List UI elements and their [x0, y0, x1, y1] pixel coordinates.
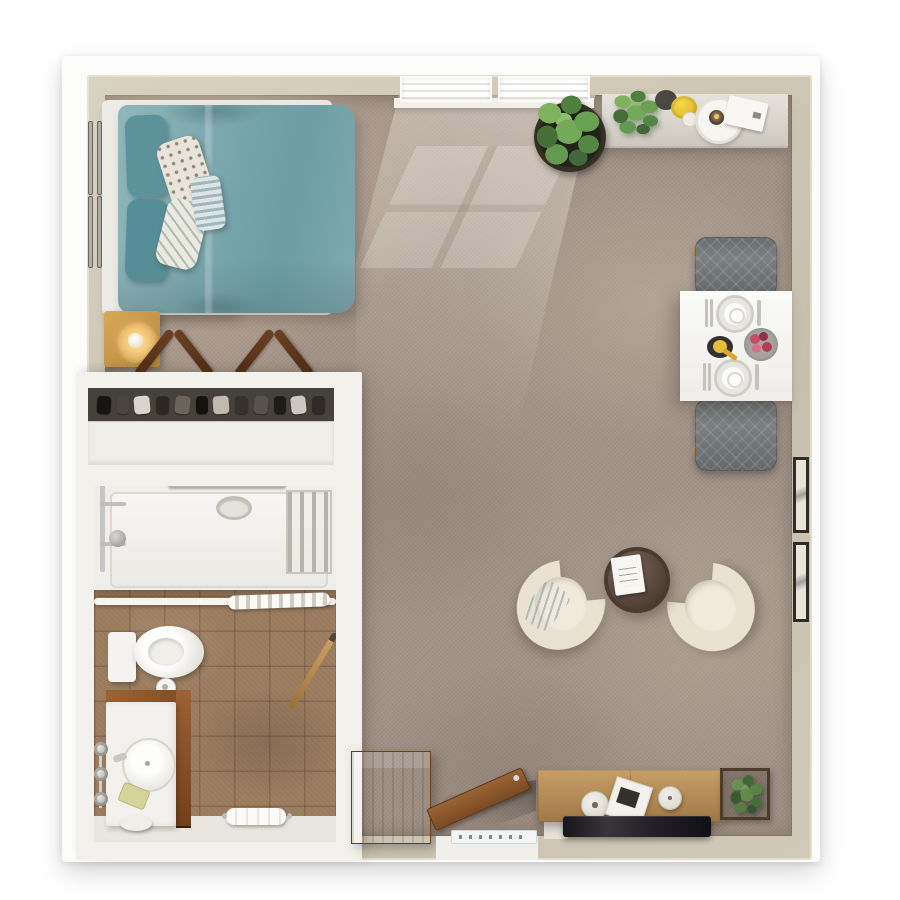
valet-stand	[240, 330, 308, 376]
wall-knob	[94, 792, 108, 806]
shower-caddy	[286, 490, 332, 574]
bath-stool	[120, 816, 152, 831]
towel-hook	[287, 813, 292, 819]
floor-plan-render	[0, 0, 900, 900]
flower	[762, 342, 772, 352]
fork	[705, 299, 708, 327]
dining-chair-top	[695, 237, 777, 297]
round-vase	[581, 791, 609, 819]
toilet-tank	[108, 632, 136, 682]
wall-frame-right-upper	[793, 457, 809, 533]
shower-arm	[100, 502, 126, 506]
shower-curtain	[228, 592, 330, 610]
flower	[752, 344, 761, 353]
wall-knob	[94, 767, 108, 781]
picture-frame	[88, 196, 93, 268]
picture-frame	[88, 121, 93, 195]
spoon	[755, 364, 759, 390]
fork	[708, 363, 711, 391]
dining-chair-bottom	[695, 399, 777, 471]
sink-drain	[145, 761, 150, 766]
shower-valve	[109, 530, 126, 547]
boxed-plant	[724, 771, 768, 817]
vanity-wood-side	[176, 690, 191, 828]
tv-screen	[563, 816, 711, 837]
round-vase	[658, 786, 682, 810]
fork	[703, 363, 706, 391]
flower	[759, 332, 768, 341]
floor-plant	[524, 88, 610, 172]
shower-pipe	[100, 486, 105, 572]
wall-frame-right-lower	[793, 542, 809, 622]
window-left	[400, 76, 492, 102]
rolled-towel	[226, 808, 286, 825]
bathroom-zone	[94, 486, 336, 842]
closet-shelf	[88, 421, 334, 465]
armchair-right-seat	[685, 580, 737, 632]
dresser	[351, 751, 431, 844]
toilet-seat	[148, 638, 184, 666]
wall-knob	[94, 742, 108, 756]
coffee-table-book	[611, 554, 646, 596]
dinner-plate	[716, 295, 754, 333]
broom	[288, 632, 336, 711]
towel-hook	[222, 813, 227, 819]
fork	[710, 299, 713, 327]
hanging-clothes-rail	[88, 388, 334, 421]
dinner-plate	[714, 359, 752, 397]
valet-stand	[140, 330, 208, 376]
candle-flame	[714, 114, 719, 119]
tub-drain	[216, 496, 252, 520]
towel-bar	[168, 486, 286, 488]
spoon	[757, 300, 761, 326]
door-handle	[512, 774, 520, 782]
